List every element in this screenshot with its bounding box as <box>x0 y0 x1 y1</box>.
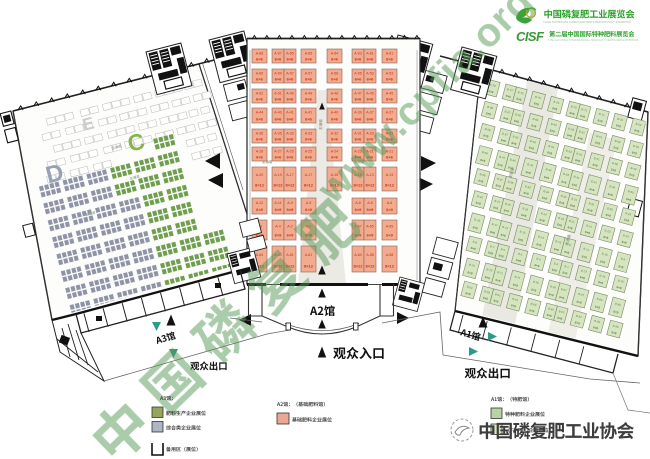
svg-text:A-51: A-51 <box>274 91 282 95</box>
svg-text:6×9: 6×9 <box>275 207 283 212</box>
svg-text:A-4: A-4 <box>275 225 281 229</box>
svg-text:A-45: A-45 <box>386 91 394 95</box>
svg-text:A-2: A-2 <box>287 225 293 229</box>
svg-text:A-9: A-9 <box>306 201 312 205</box>
svg-text:A-61: A-61 <box>305 253 313 257</box>
svg-text:6×6: 6×6 <box>256 57 264 62</box>
svg-text:A-35: A-35 <box>274 131 282 135</box>
svg-text:6×6: 6×6 <box>305 77 313 82</box>
svg-text:6×6: 6×6 <box>355 77 363 82</box>
svg-text:A-8: A-8 <box>355 201 361 205</box>
svg-text:6×6: 6×6 <box>305 57 313 62</box>
svg-text:CISF: CISF <box>516 29 545 44</box>
svg-text:A-57: A-57 <box>305 71 313 75</box>
svg-text:A-67: A-67 <box>274 51 282 55</box>
svg-text:6×9: 6×9 <box>305 207 313 212</box>
svg-text:6×6: 6×6 <box>386 77 394 82</box>
svg-text:8×12: 8×12 <box>385 263 395 268</box>
svg-text:8×12: 8×12 <box>385 183 395 188</box>
svg-text:6×9: 6×9 <box>367 207 375 212</box>
svg-text:A-49: A-49 <box>305 91 313 95</box>
svg-text:6×6: 6×6 <box>367 97 375 102</box>
svg-text:A-33: A-33 <box>305 131 313 135</box>
svg-text:6×9: 6×9 <box>256 207 264 212</box>
svg-text:A-11: A-11 <box>274 201 281 205</box>
svg-text:8×12: 8×12 <box>255 183 265 188</box>
svg-text:A-52: A-52 <box>256 91 264 95</box>
svg-text:6×6: 6×6 <box>367 77 375 82</box>
svg-text:A-47: A-47 <box>354 91 362 95</box>
svg-text:A-53: A-53 <box>366 71 374 75</box>
svg-text:A-40: A-40 <box>331 111 339 115</box>
svg-text:A-61: A-61 <box>366 51 374 55</box>
svg-text:6×6: 6×6 <box>275 77 283 82</box>
svg-text:6×6: 6×6 <box>256 137 264 142</box>
svg-text:A-61: A-61 <box>286 253 294 257</box>
svg-text:6×6: 6×6 <box>256 116 264 121</box>
svg-text:6×6: 6×6 <box>287 57 295 62</box>
svg-text:6×9: 6×9 <box>386 232 394 237</box>
svg-text:6×6: 6×6 <box>355 116 363 121</box>
svg-text:A-25: A-25 <box>286 149 294 153</box>
svg-text:A-6: A-6 <box>387 201 393 205</box>
svg-text:6×6: 6×6 <box>331 57 339 62</box>
svg-text:A-13: A-13 <box>386 173 394 177</box>
svg-text:6×9: 6×9 <box>386 207 394 212</box>
svg-text:A-12: A-12 <box>256 201 264 205</box>
svg-text:6×6: 6×6 <box>275 155 283 160</box>
svg-text:A-45: A-45 <box>366 91 374 95</box>
svg-text:A-28: A-28 <box>256 149 264 153</box>
svg-text:6×9: 6×9 <box>287 207 295 212</box>
svg-text:A-6: A-6 <box>367 201 373 205</box>
svg-text:A-39: A-39 <box>354 111 362 115</box>
svg-text:6×6: 6×6 <box>305 137 313 142</box>
svg-text:8×12: 8×12 <box>273 183 283 188</box>
svg-text:6×6: 6×6 <box>331 137 339 142</box>
svg-text:6×6: 6×6 <box>386 57 394 62</box>
svg-text:6×6: 6×6 <box>355 97 363 102</box>
svg-text:A-17: A-17 <box>305 173 313 177</box>
svg-text:THE 2nd CHINA INTERNATIONAL SP: THE 2nd CHINA INTERNATIONAL SPECIALTY FE… <box>548 39 638 42</box>
svg-text:A-49: A-49 <box>286 91 294 95</box>
svg-text:8×12: 8×12 <box>304 263 314 268</box>
svg-text:6×6: 6×6 <box>287 97 295 102</box>
svg-text:A-64: A-64 <box>256 253 264 257</box>
svg-text:A-53: A-53 <box>386 71 394 75</box>
svg-text:A-25: A-25 <box>305 149 313 153</box>
svg-text:A-64: A-64 <box>331 51 339 55</box>
svg-text:6×9: 6×9 <box>367 232 375 237</box>
svg-text:A-20: A-20 <box>256 173 264 177</box>
svg-text:A-37: A-37 <box>366 111 374 115</box>
svg-text:6×6: 6×6 <box>287 116 295 121</box>
svg-text:A-65: A-65 <box>366 225 374 229</box>
svg-text:A-60: A-60 <box>354 253 362 257</box>
svg-text:A-56: A-56 <box>331 71 339 75</box>
svg-text:6×9: 6×9 <box>275 232 283 237</box>
svg-text:A-63: A-63 <box>354 51 362 55</box>
svg-text:8×12: 8×12 <box>285 183 295 188</box>
svg-text:A-59: A-59 <box>274 71 282 75</box>
svg-text:A-65: A-65 <box>305 51 313 55</box>
svg-text:8×12: 8×12 <box>365 263 375 268</box>
svg-text:A-65: A-65 <box>386 225 394 229</box>
svg-text:6×6: 6×6 <box>256 77 264 82</box>
svg-text:A-43: A-43 <box>274 111 282 115</box>
svg-text:6×6: 6×6 <box>305 155 313 160</box>
svg-text:A-32: A-32 <box>331 131 339 135</box>
svg-text:6×6: 6×6 <box>256 155 264 160</box>
svg-text:A-68: A-68 <box>256 51 264 55</box>
svg-text:A-17: A-17 <box>286 173 294 177</box>
svg-text:A-33: A-33 <box>286 131 294 135</box>
svg-text:CHINA PHOSPHATE COMPOUND FERTI: CHINA PHOSPHATE COMPOUND FERTILIZER INDU… <box>543 20 631 24</box>
svg-text:6×6: 6×6 <box>355 57 363 62</box>
svg-text:6×6: 6×6 <box>367 57 375 62</box>
svg-text:A-65: A-65 <box>286 51 294 55</box>
svg-text:8×12: 8×12 <box>353 263 363 268</box>
svg-text:6×6: 6×6 <box>256 97 264 102</box>
svg-text:6×6: 6×6 <box>305 97 313 102</box>
svg-text:A-58: A-58 <box>386 253 394 257</box>
svg-text:6×6: 6×6 <box>331 116 339 121</box>
svg-text:A-57: A-57 <box>286 71 294 75</box>
svg-text:6×6: 6×6 <box>275 97 283 102</box>
svg-text:6×6: 6×6 <box>275 116 283 121</box>
svg-text:A-44: A-44 <box>256 111 264 115</box>
svg-text:6×9: 6×9 <box>287 232 295 237</box>
svg-text:A-36: A-36 <box>256 131 264 135</box>
svg-text:6×6: 6×6 <box>275 137 283 142</box>
svg-text:A-41: A-41 <box>286 111 294 115</box>
svg-text:6×6: 6×6 <box>287 155 295 160</box>
svg-text:6×6: 6×6 <box>331 97 339 102</box>
svg-text:6×9: 6×9 <box>355 207 363 212</box>
svg-text:A-58: A-58 <box>366 253 374 257</box>
svg-text:A-60: A-60 <box>256 71 264 75</box>
svg-text:A-55: A-55 <box>354 71 362 75</box>
svg-text:A-41: A-41 <box>305 111 313 115</box>
svg-text:6×6: 6×6 <box>305 116 313 121</box>
svg-text:A-61: A-61 <box>386 51 394 55</box>
svg-text:A-48: A-48 <box>331 91 339 95</box>
svg-text:6×6: 6×6 <box>331 77 339 82</box>
svg-text:6×6: 6×6 <box>287 137 295 142</box>
svg-text:A-19: A-19 <box>274 173 282 177</box>
svg-text:A-9: A-9 <box>287 201 293 205</box>
svg-text:A-27: A-27 <box>274 149 282 153</box>
svg-text:6×6: 6×6 <box>287 77 295 82</box>
svg-text:6×6: 6×6 <box>275 57 283 62</box>
